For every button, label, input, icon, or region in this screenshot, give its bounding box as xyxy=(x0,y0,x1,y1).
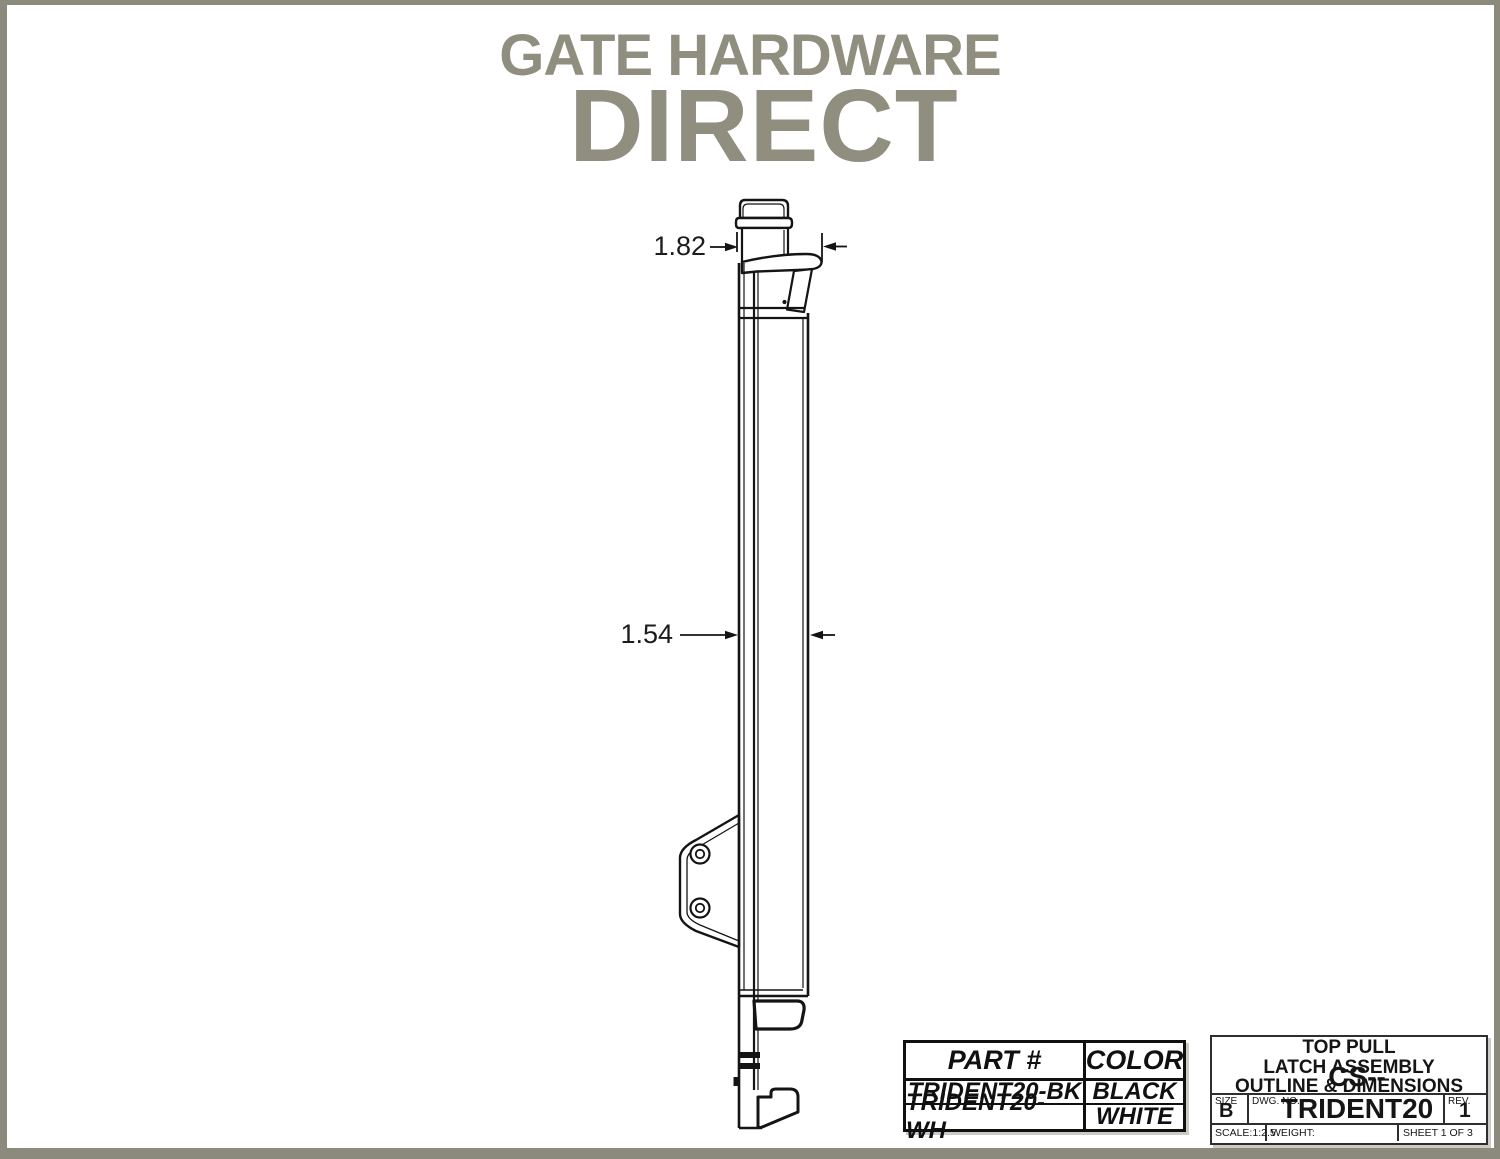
title-block-mid-row: SIZE B DWG. NO. CS--TRIDENT20 REV. 1 xyxy=(1212,1095,1486,1125)
title-line-1: TOP PULL xyxy=(1212,1038,1486,1058)
title-block-bottom-row: SCALE:1:2.5 WEIGHT: SHEET 1 OF 3 xyxy=(1212,1125,1486,1141)
part-number-cell: TRIDENT20-WH xyxy=(906,1105,1086,1129)
title-block: TOP PULL LATCH ASSEMBLY OUTLINE & DIMENS… xyxy=(1210,1035,1488,1145)
knob-outline xyxy=(736,200,792,262)
latch-body xyxy=(739,263,808,1128)
dwg-no-cell: DWG. NO. CS--TRIDENT20 xyxy=(1249,1095,1445,1123)
latch-bottom xyxy=(734,1001,805,1128)
size-value: B xyxy=(1219,1100,1233,1123)
mounting-bracket xyxy=(680,815,739,947)
sheet-number: SHEET 1 OF 3 xyxy=(1399,1125,1486,1141)
parts-table: PART # COLOR TRIDENT20-BK BLACK TRIDENT2… xyxy=(903,1040,1186,1132)
scale-value: SCALE:1:2.5 xyxy=(1212,1125,1267,1141)
parts-table-header-part: PART # xyxy=(906,1043,1086,1081)
dimension-label-top-width: 1.82 xyxy=(650,233,706,260)
drawing-sheet: GATE HARDWARE DIRECT xyxy=(0,0,1500,1159)
part-color-cell: WHITE xyxy=(1086,1105,1183,1129)
dwg-no-value: CS--TRIDENT20 xyxy=(1249,1061,1443,1125)
parts-table-header-color: COLOR xyxy=(1086,1043,1183,1081)
rev-value: 1 xyxy=(1459,1099,1471,1123)
rev-cell: REV. 1 xyxy=(1445,1095,1486,1123)
weight-label: WEIGHT: xyxy=(1267,1125,1399,1141)
part-color-cell: BLACK xyxy=(1086,1081,1183,1105)
size-cell: SIZE B xyxy=(1212,1095,1249,1123)
dimension-label-body-width: 1.54 xyxy=(617,621,673,648)
latch-assembly-drawing xyxy=(0,0,1500,1159)
